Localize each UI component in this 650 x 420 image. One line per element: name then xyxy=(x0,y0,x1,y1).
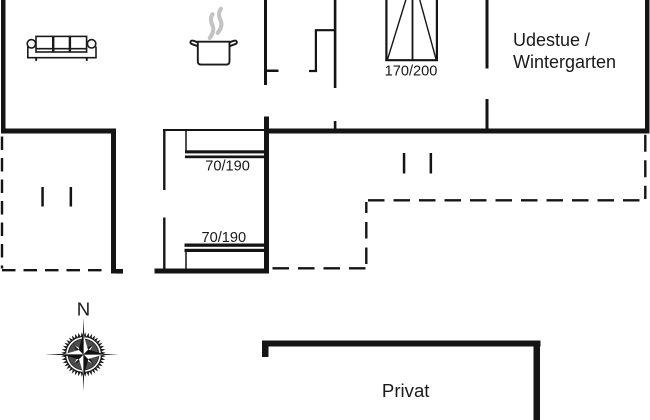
svg-text:170/200: 170/200 xyxy=(385,64,438,80)
svg-text:N: N xyxy=(77,298,90,319)
svg-text:Wintergarten: Wintergarten xyxy=(513,52,616,72)
svg-text:Privat: Privat xyxy=(382,380,430,401)
svg-text:Udestue /: Udestue / xyxy=(513,30,590,50)
svg-text:70/190: 70/190 xyxy=(205,159,250,175)
